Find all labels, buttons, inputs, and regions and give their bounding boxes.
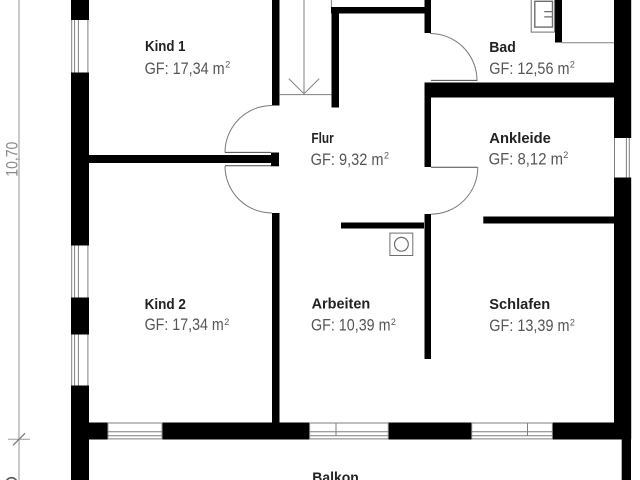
svg-text:2: 2: [570, 59, 575, 69]
svg-text:GF: 9,32 m: GF: 9,32 m: [311, 150, 384, 169]
svg-text:Kind 2: Kind 2: [145, 296, 186, 313]
svg-text:2: 2: [224, 317, 229, 327]
svg-text:2: 2: [391, 317, 396, 327]
svg-text:10,70: 10,70: [3, 142, 22, 177]
svg-text:Schlafen: Schlafen: [489, 296, 550, 313]
svg-text:GF: 8,12 m: GF: 8,12 m: [489, 150, 563, 169]
svg-text:Balkon: Balkon: [312, 470, 359, 480]
svg-text:Kind 1: Kind 1: [145, 38, 186, 55]
svg-text:Ankleide: Ankleide: [489, 130, 551, 147]
svg-text:Flur: Flur: [311, 130, 333, 147]
svg-text:Arbeiten: Arbeiten: [312, 296, 371, 313]
svg-text:GF: 10,39 m: GF: 10,39 m: [311, 316, 391, 335]
svg-text:GF: 17,34 m: GF: 17,34 m: [145, 315, 224, 334]
svg-text:2: 2: [225, 59, 230, 69]
svg-text:2: 2: [563, 150, 568, 160]
svg-text:2: 2: [570, 317, 575, 327]
svg-text:2: 2: [384, 150, 389, 160]
svg-text:GF: 12,56 m: GF: 12,56 m: [489, 59, 569, 78]
svg-text:GF: 13,39 m: GF: 13,39 m: [489, 316, 569, 335]
svg-text:Bad: Bad: [489, 39, 516, 56]
svg-text:GF: 17,34 m: GF: 17,34 m: [145, 59, 225, 78]
